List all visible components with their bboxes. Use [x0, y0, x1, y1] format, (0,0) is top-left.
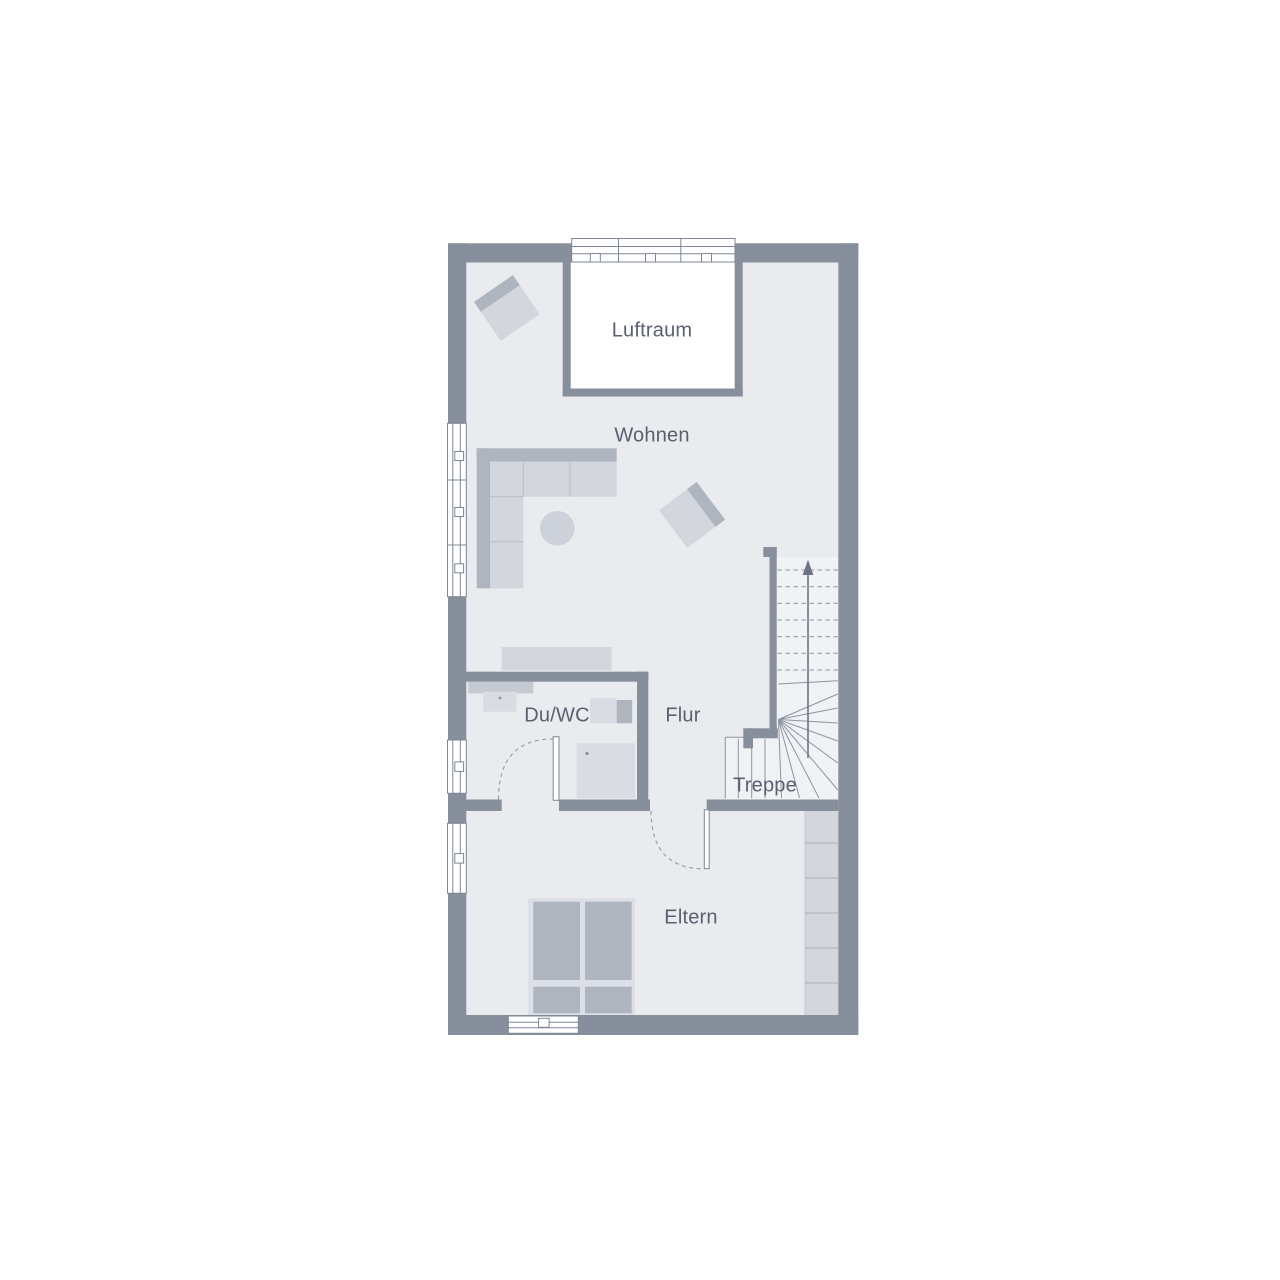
- room-label-flur: Flur: [665, 705, 700, 728]
- wall-duwc-right: [637, 672, 648, 811]
- room-label-du-wc: Du/WC: [524, 705, 589, 728]
- window-left-2: [448, 740, 467, 793]
- window-left-3: [448, 823, 467, 893]
- washbasin: [483, 692, 516, 712]
- room-label-treppe: Treppe: [733, 775, 797, 798]
- wall-duwc-top: [463, 672, 648, 682]
- wall-right: [838, 243, 858, 1035]
- wall-divider-2: [559, 800, 650, 812]
- floor-plan-page: Luftraum Wohnen Du/WC Flur Treppe Eltern: [0, 0, 1280, 1280]
- room-label-wohnen: Wohnen: [614, 425, 689, 448]
- coffee-table: [540, 511, 575, 546]
- wardrobe: [805, 808, 838, 1016]
- room-label-luftraum: Luftraum: [612, 320, 693, 343]
- toilet: [590, 698, 617, 723]
- wall-left: [448, 243, 466, 1035]
- window-bottom: [508, 1016, 578, 1033]
- wall-divider-3: [707, 800, 839, 812]
- floor-plan-drawing: [0, 0, 1280, 1280]
- window-top: [572, 239, 735, 263]
- sideboard: [502, 647, 612, 670]
- double-bed: [528, 898, 635, 1015]
- window-left-1: [448, 423, 467, 596]
- bath-shelf: [468, 682, 533, 694]
- wall-divider-1: [463, 800, 502, 812]
- wall-stair: [770, 547, 777, 737]
- shower: [577, 743, 635, 798]
- room-label-eltern: Eltern: [664, 907, 717, 930]
